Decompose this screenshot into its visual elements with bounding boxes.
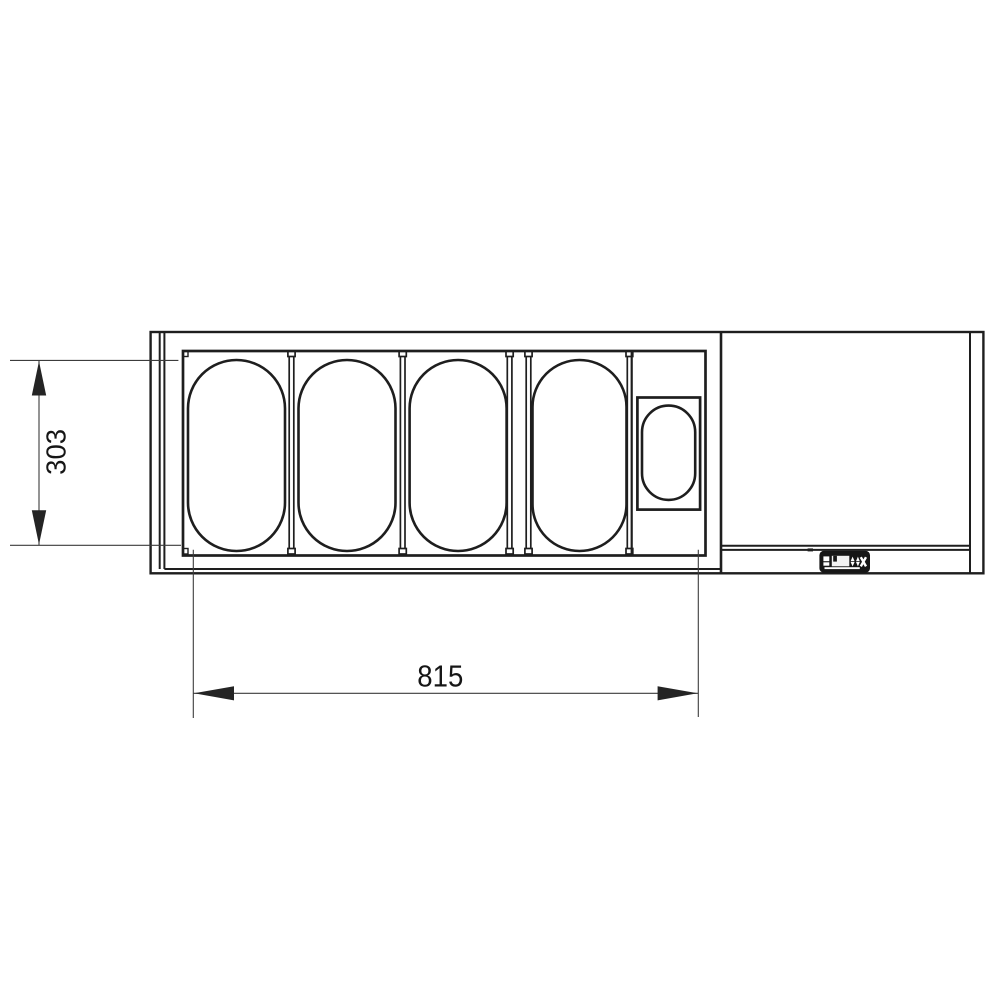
svg-text:303: 303 xyxy=(40,429,71,475)
svg-text:815: 815 xyxy=(417,659,463,694)
